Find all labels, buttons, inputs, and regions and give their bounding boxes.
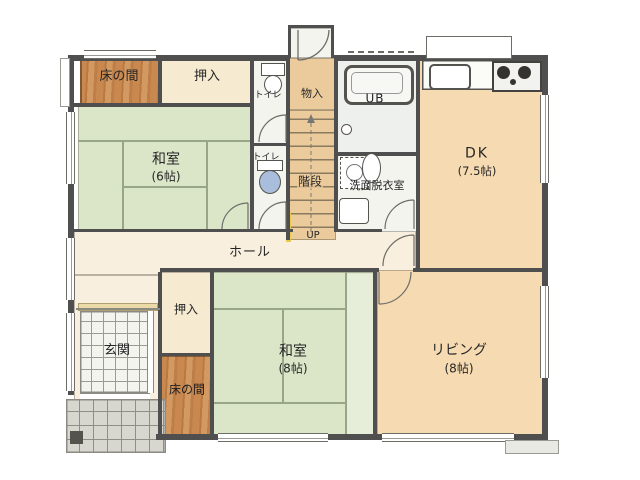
door-arc-toilet-bottom [259, 202, 286, 229]
label-monoire: 物入 [301, 88, 323, 100]
label-toilet-top: トイレ [254, 91, 281, 100]
label-oshiire-bottom: 押入 [174, 304, 198, 317]
label-unit-bath: UB [365, 93, 384, 106]
label-dk-size: (7.5帖) [458, 165, 497, 177]
label-washitsu8: 和室 [279, 345, 307, 360]
door-swing-overlay [0, 0, 640, 480]
door-arc-toilet-top [259, 115, 286, 142]
door-arc-dk-hall [383, 235, 414, 266]
label-stairs-up: UP [306, 231, 319, 242]
label-washroom: 洗面脱衣室 [350, 180, 405, 192]
label-living-size: (8帖) [445, 363, 474, 376]
label-washitsu6-size: (6帖) [152, 171, 181, 184]
label-dk: DK [465, 147, 489, 162]
label-living: リビング [431, 344, 487, 359]
label-washitsu6: 和室 [152, 153, 180, 168]
stairs-up-arrow [307, 114, 315, 123]
door-arc-entry [298, 30, 329, 60]
label-toilet-bottom: トイレ [252, 153, 279, 162]
floor-plan: 床の間 押入 和室 (6帖) トイレ トイレ 物入 階段 UP UB 洗面脱衣室… [0, 0, 640, 480]
door-arc-living [379, 272, 411, 304]
label-hall: ホール [229, 246, 271, 260]
label-tokonoma-top: 床の間 [99, 70, 138, 84]
label-genkan: 玄関 [104, 344, 130, 358]
label-washitsu8-size: (8帖) [279, 363, 308, 376]
label-stairs: 階段 [297, 176, 323, 189]
door-arc-washitsu6 [222, 203, 248, 229]
door-arc-washroom [385, 200, 414, 229]
label-tokonoma-bottom: 床の間 [169, 384, 205, 397]
label-oshiire-top: 押入 [194, 70, 220, 84]
